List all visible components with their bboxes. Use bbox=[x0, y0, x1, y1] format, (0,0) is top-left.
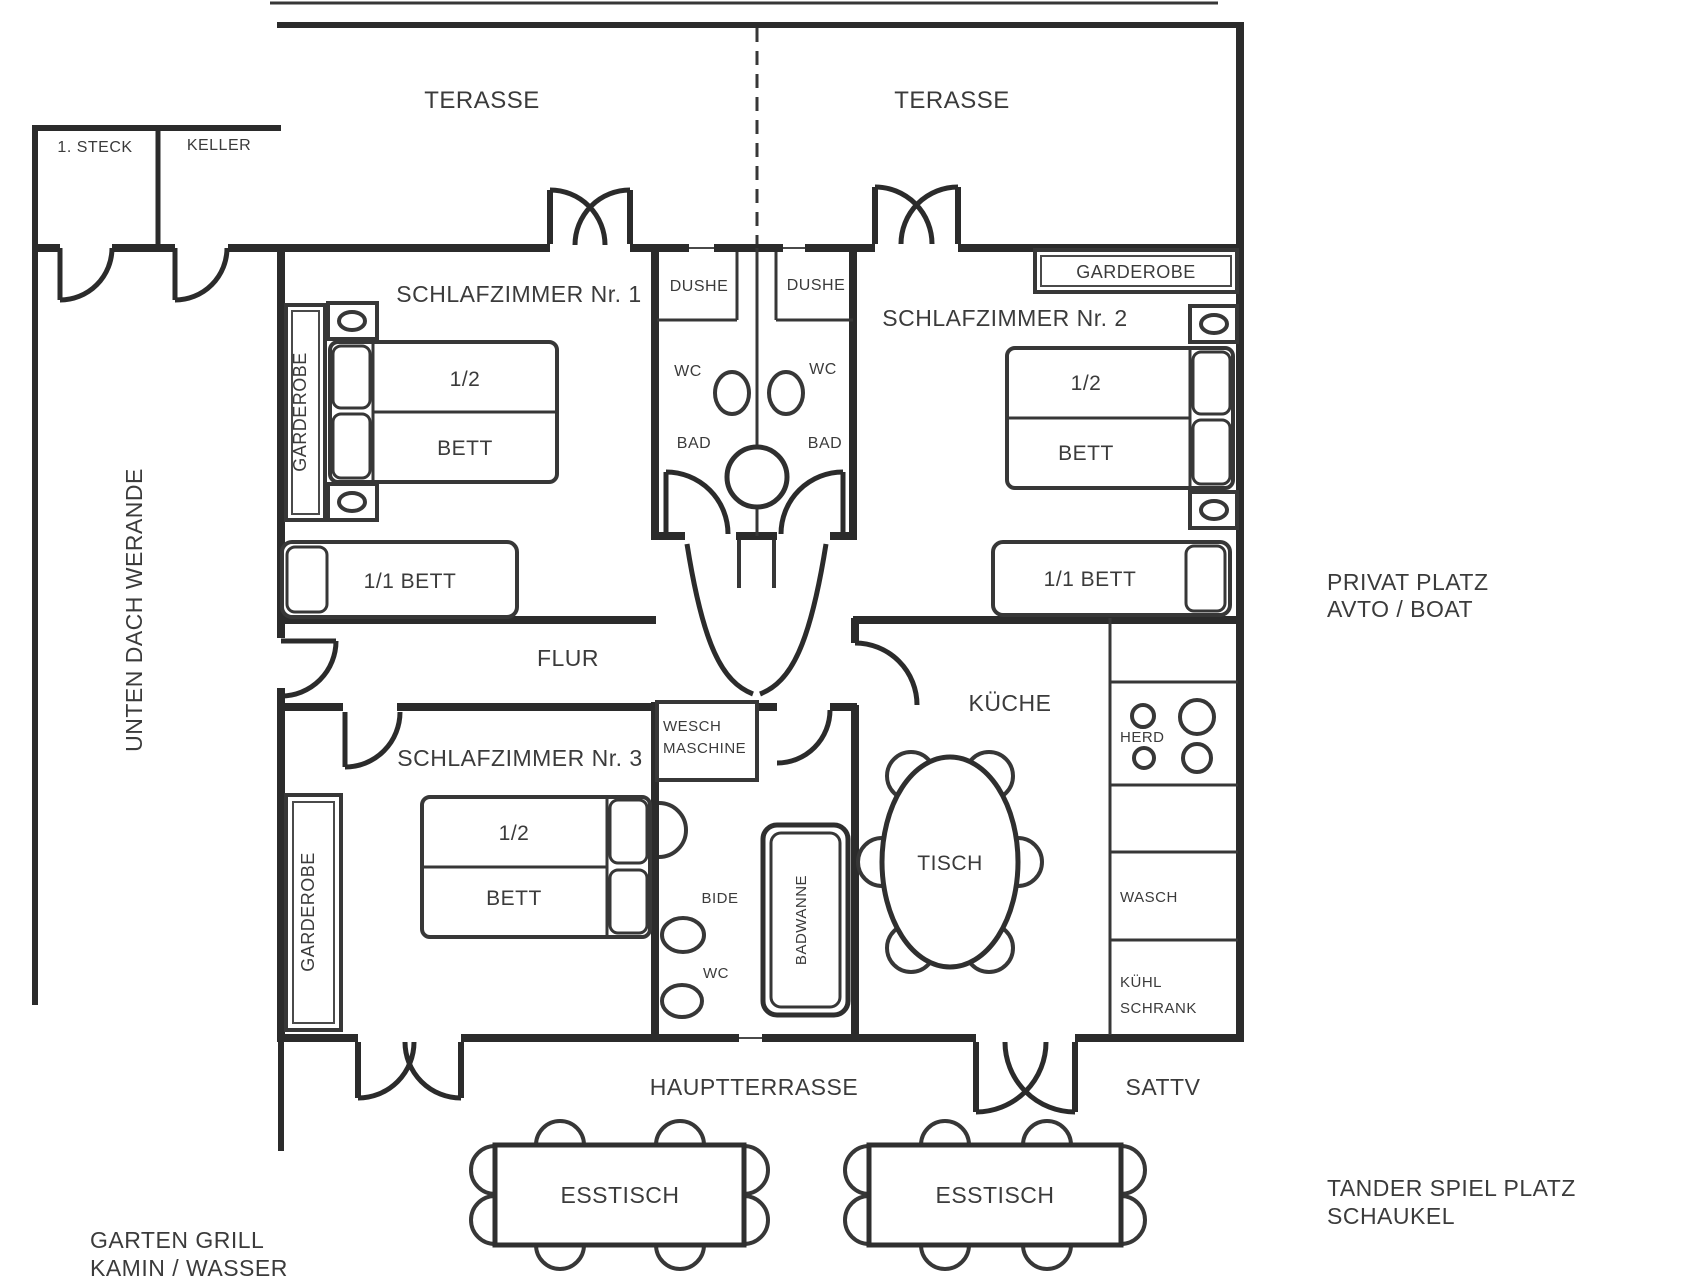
bedroom1-double-bed bbox=[330, 342, 557, 482]
label-spielplatz-line2: SCHAUKEL bbox=[1327, 1203, 1455, 1229]
label-wesch-line2: MASCHINE bbox=[663, 740, 746, 757]
toilet-right bbox=[769, 372, 803, 414]
flur-entry-door bbox=[281, 641, 336, 696]
label-wc-right: WC bbox=[809, 361, 837, 378]
label-terasse-right: TERASSE bbox=[894, 87, 1010, 114]
label-veranda: UNTEN DACH WERANDE bbox=[121, 468, 147, 752]
label-privat-line1: PRIVAT PLATZ bbox=[1327, 569, 1489, 595]
label-dushe-right: DUSHE bbox=[787, 277, 846, 294]
lower-bath-door bbox=[777, 710, 830, 763]
label-single-bed2: 1/1 BETT bbox=[1044, 568, 1137, 591]
bedroom2-double-bed bbox=[1007, 348, 1233, 488]
label-schrank: SCHRANK bbox=[1120, 1000, 1197, 1017]
hall-double-doors bbox=[687, 540, 826, 694]
label-kuehl: KÜHL bbox=[1120, 973, 1162, 991]
label-bedroom3: SCHLAFZIMMER Nr. 3 bbox=[397, 745, 642, 771]
bedroom3-double-bed bbox=[422, 797, 650, 937]
main-terrace-double-door-1 bbox=[358, 1042, 461, 1098]
kitchen-door bbox=[855, 643, 917, 705]
label-tisch: TISCH bbox=[917, 852, 983, 875]
label-dushe-left: DUSHE bbox=[670, 278, 729, 295]
label-wc-left: WC bbox=[674, 363, 702, 380]
bedroom1-nightstand-bottom bbox=[328, 484, 377, 520]
bide-fixture bbox=[662, 918, 704, 952]
label-keller: KELLER bbox=[187, 137, 251, 154]
label-bad-left: BAD bbox=[677, 435, 711, 452]
label-bed3: BETT bbox=[486, 887, 542, 910]
label-garderobe1: GARDEROBE bbox=[290, 352, 310, 472]
label-sattv: SATTV bbox=[1126, 1074, 1201, 1100]
label-bedroom1: SCHLAFZIMMER Nr. 1 bbox=[396, 281, 641, 307]
label-badwanne: BADWANNE bbox=[793, 875, 810, 965]
bedroom2-nightstand-bottom bbox=[1190, 492, 1237, 528]
label-flur: FLUR bbox=[537, 645, 599, 671]
label-wasch: WASCH bbox=[1120, 889, 1178, 906]
kitchen-counter-lines bbox=[1110, 618, 1238, 1035]
label-wc-lower: WC bbox=[703, 965, 729, 982]
label-bed2-half: 1/2 bbox=[1071, 372, 1102, 395]
label-herd: HERD bbox=[1120, 729, 1165, 746]
bedroom1-nightstand-top bbox=[328, 303, 377, 339]
bedroom3-wall-shelf bbox=[659, 803, 686, 857]
entry-doors bbox=[60, 248, 227, 300]
label-kueche: KÜCHE bbox=[968, 690, 1051, 716]
label-hauptterrasse: HAUPTTERRASSE bbox=[650, 1074, 858, 1100]
label-bad-right: BAD bbox=[808, 435, 842, 452]
label-bed3-half: 1/2 bbox=[499, 822, 530, 845]
label-privat-line2: AVTO / BOAT bbox=[1327, 596, 1473, 622]
label-garten-line1: GARTEN GRILL bbox=[90, 1227, 264, 1253]
label-bedroom2: SCHLAFZIMMER Nr. 2 bbox=[882, 305, 1127, 331]
floor-plan-page: TERASSE TERASSE 1. STECK KELLER UNTEN DA… bbox=[0, 0, 1707, 1280]
label-esstisch2: ESSTISCH bbox=[935, 1182, 1054, 1208]
toilet-left bbox=[715, 372, 749, 414]
shared-sink bbox=[727, 447, 787, 507]
label-esstisch1: ESSTISCH bbox=[560, 1182, 679, 1208]
label-spielplatz-line1: TANDER SPIEL PLATZ bbox=[1327, 1175, 1576, 1201]
label-bed1-half: 1/2 bbox=[450, 368, 481, 391]
label-garten-line2: KAMIN / WASSER bbox=[90, 1255, 288, 1280]
label-bed2: BETT bbox=[1058, 442, 1114, 465]
label-steck: 1. STECK bbox=[57, 139, 132, 156]
terrace-double-door-2 bbox=[875, 187, 958, 244]
label-bed1: BETT bbox=[437, 437, 493, 460]
floor-plan-drawing: TERASSE TERASSE 1. STECK KELLER UNTEN DA… bbox=[0, 0, 1707, 1280]
toilet-lower bbox=[662, 985, 702, 1017]
main-terrace-double-door-2 bbox=[976, 1042, 1075, 1112]
bedroom3-door bbox=[345, 712, 400, 767]
label-garderobe2: GARDEROBE bbox=[1076, 262, 1196, 282]
label-garderobe3: GARDEROBE bbox=[298, 852, 318, 972]
terrace-double-door-1 bbox=[550, 190, 630, 245]
label-wesch-line1: WESCH bbox=[663, 718, 721, 735]
label-single-bed1: 1/1 BETT bbox=[364, 570, 457, 593]
label-terasse-left: TERASSE bbox=[424, 87, 540, 114]
label-bide: BIDE bbox=[701, 890, 738, 907]
bedroom2-nightstand-top bbox=[1190, 306, 1237, 342]
